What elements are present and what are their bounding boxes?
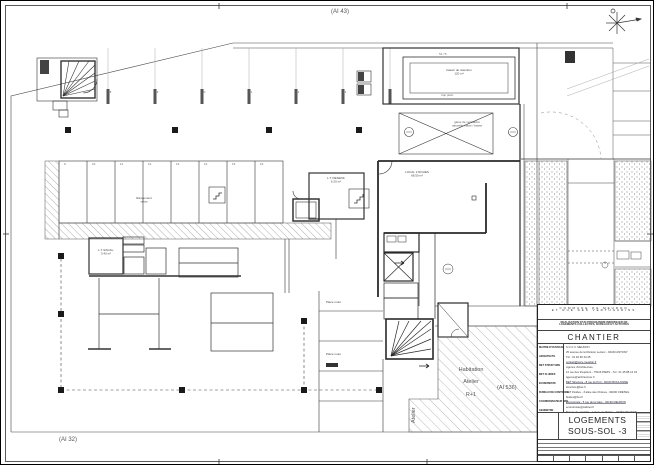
habitation-line1: Habitation xyxy=(449,367,493,373)
parking-number: 13 xyxy=(173,163,201,166)
parking-number: 14 xyxy=(201,163,229,166)
title-block: COMMUNE DE MEUDON ET RUE DES VERTUGADINS… xyxy=(537,304,651,462)
label-place-moto-1: Place moto xyxy=(326,301,341,304)
footer-cell xyxy=(586,455,602,461)
parking-number: 15 xyxy=(229,163,257,166)
hatch-strip-horizontal xyxy=(59,223,331,239)
ventilation-shaft xyxy=(399,113,518,154)
info-cell xyxy=(637,431,650,439)
label-dim-top: 54.75 xyxy=(439,53,447,56)
parking-number: 20 xyxy=(199,91,246,94)
parking-row-top xyxy=(107,48,392,104)
contact-line: BET Structure - 8 rue du Port - 92100 BO… xyxy=(566,381,648,384)
footer-cell xyxy=(603,455,619,461)
titleblock-subtitle: REALISATION D'UN PROGRAMME IMMOBILIER DE… xyxy=(538,320,650,331)
contact-line: BET Fluides - 3 allée des Chênes - 94000… xyxy=(566,391,648,394)
label-local-2-roues: LOCAL 2 ROUES 68.50 m² xyxy=(397,171,437,178)
label-bassin: bassin de rétention 120 m³ xyxy=(439,69,479,76)
label-trop-plein: trop plein xyxy=(441,94,453,97)
contact-line: 25 avenue de la Division Leclerc - 92160… xyxy=(566,351,648,354)
room-area: 68.50 m² xyxy=(397,174,437,177)
role-label: COORDONNATEUR SPS xyxy=(539,400,562,403)
parking-number: 19 xyxy=(152,91,199,94)
info-cell xyxy=(637,422,650,431)
drawing-title-line1: LOGEMENTS xyxy=(559,415,636,426)
parking-number: 12 xyxy=(145,163,173,166)
contact-line: contact@sccv-meudon.fr xyxy=(566,361,648,364)
drawing-title: LOGEMENTS SOUS-SOL -3 xyxy=(559,413,636,439)
role-label: MAITRE D'OUVRAGE xyxy=(539,346,562,349)
room-area: 3.40 m² xyxy=(93,252,120,255)
parking-row-2 xyxy=(59,161,283,223)
footer-cell xyxy=(554,455,570,461)
direction-arrows xyxy=(394,261,429,368)
label-gaine: gaine de ventilation naturelle haute / b… xyxy=(448,121,486,128)
label-atelier-vertical: Atelier xyxy=(411,407,417,423)
room-area: 120 m³ xyxy=(439,72,479,75)
label-rangement: Rangement vélos xyxy=(132,197,157,204)
entry-room xyxy=(438,303,468,337)
role-label: BET FLUIDES xyxy=(539,373,562,376)
contact-line: fluides@bet.fr xyxy=(566,396,648,399)
contact-line: Economiste - 5 rue de la Gare - 92190 ME… xyxy=(566,401,648,404)
revision-row xyxy=(538,451,650,454)
contact-line: Agence d'Architecture xyxy=(566,366,648,369)
role-label: BUREAU DE CONTROLE xyxy=(539,391,562,394)
footer-cell xyxy=(619,455,635,461)
parking-number: 22 xyxy=(293,91,340,94)
footer-cell xyxy=(538,455,554,461)
contact-line: 12 rue des Peupliers - 75013 PARIS - Tél… xyxy=(566,371,648,374)
label-lt-escalier: L.T. ESCAL. 3.40 m² xyxy=(93,249,120,256)
label-ai32: (AI 32) xyxy=(59,437,77,444)
contact-line: S.C.C.V. MEUDON xyxy=(566,346,648,349)
titleblock-logo-cell xyxy=(538,413,559,439)
footer-cell xyxy=(570,455,586,461)
parking-number: 16 xyxy=(257,163,285,166)
role-label: GEOMETRE xyxy=(539,409,562,412)
column-markers xyxy=(65,127,362,133)
titleblock-commune: COMMUNE DE MEUDON ET RUE DES VERTUGADINS xyxy=(538,305,650,320)
room-area: 6.20 m² xyxy=(321,180,351,183)
north-arrow-icon xyxy=(606,9,641,34)
parking-bottom-left xyxy=(88,278,273,351)
label-ai43: (AI 43) xyxy=(331,9,349,16)
titleblock-footer-cells xyxy=(538,455,650,461)
parking-number: 10 xyxy=(89,163,117,166)
parking-number: 21 xyxy=(246,91,293,94)
contact-line: economiste@cabinet.fr xyxy=(566,406,648,409)
info-cell xyxy=(637,413,650,422)
contact-line: agence@architecture.fr xyxy=(566,376,648,379)
role-label: ARCHITECTE xyxy=(539,355,562,358)
habitation-line2: Atelier xyxy=(449,379,493,385)
technical-rooms xyxy=(89,237,241,277)
titleblock-title-row: LOGEMENTS SOUS-SOL -3 xyxy=(538,413,650,440)
parking-numbers-row1: 181920212223 xyxy=(105,91,387,94)
titleblock-revision-rows xyxy=(538,440,650,455)
room-local-2-roues xyxy=(378,104,524,306)
titleblock-info-cells xyxy=(636,413,650,439)
role-label: ECONOMISTE xyxy=(539,382,562,385)
street-right xyxy=(521,48,651,159)
titleblock-section-title: CHANTIER xyxy=(538,331,650,344)
label-lt-desenfumage: L.T. DESENF. 6.20 m² xyxy=(321,177,351,184)
parking-number: 11 xyxy=(117,163,145,166)
role-label: BET STRUCTURE xyxy=(539,364,562,367)
parking-moto xyxy=(319,291,383,432)
hatch-strip-left xyxy=(45,161,59,239)
drawing-sheet: (AI 43) (AI 32) (AI 536) Habitation Atel… xyxy=(0,0,654,465)
subtitle-line2: LOGEMENTS COLLECTIFS, BUREAUX ET ACTIVIT… xyxy=(538,323,650,326)
garden-strips xyxy=(525,159,651,306)
label-habitation-zone: Habitation Atelier R+1 xyxy=(449,367,493,398)
footer-cell xyxy=(635,455,650,461)
parking-number: 18 xyxy=(105,91,152,94)
parking-numbers-row2: 910111213141516 xyxy=(61,163,285,166)
contact-line: Bureau de contrôle - 1 place de l'Eglise… xyxy=(566,411,648,412)
titleblock-contact-lines: S.C.C.V. MEUDON25 avenue de la Division … xyxy=(564,344,650,412)
commune-line2: ET RUE DES VERTUGADINS xyxy=(538,309,650,312)
habitation-line3: R+1 xyxy=(449,392,493,398)
titleblock-roles: MAITRE D'OUVRAGEARCHITECTEBET STRUCTUREB… xyxy=(538,344,564,412)
label-ai536: (AI 536) xyxy=(497,385,517,391)
drawing-title-line2: SOUS-SOL -3 xyxy=(559,426,636,437)
contact-line: structure@bet.fr xyxy=(566,386,648,389)
parking-number: 9 xyxy=(61,163,89,166)
room-name-2: vélos xyxy=(132,200,157,203)
titleblock-contacts: MAITRE D'OUVRAGEARCHITECTEBET STRUCTUREB… xyxy=(538,344,650,413)
parking-number: 23 xyxy=(340,91,387,94)
label-place-moto-2: Place moto xyxy=(326,353,341,356)
contact-line: Tél : 01 46 66 23 45 xyxy=(566,356,648,359)
